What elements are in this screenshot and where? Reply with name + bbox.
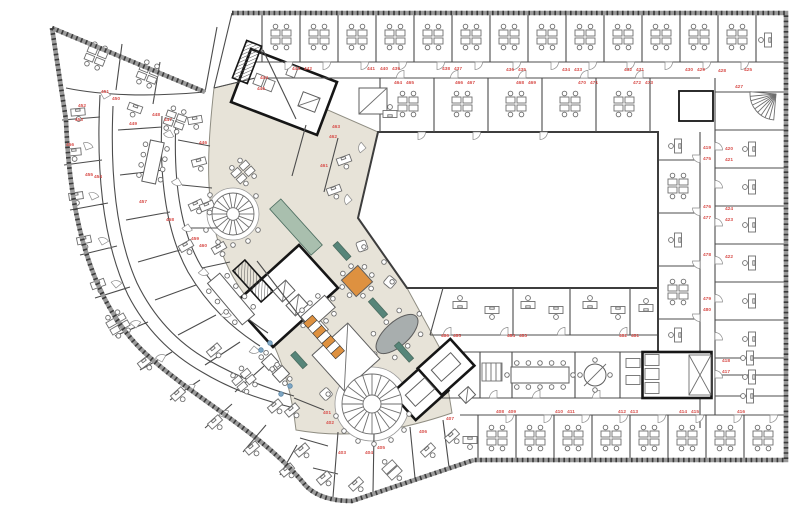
room-label: 428 <box>718 68 726 74</box>
chair <box>389 438 394 443</box>
room-label: 449 <box>129 121 137 127</box>
room-label: 427 <box>735 84 743 90</box>
room-label: 446 <box>199 140 207 146</box>
room-label: 456 <box>66 142 74 148</box>
room-label: 442 <box>304 66 312 72</box>
chair <box>259 348 264 353</box>
room-label: 411 <box>567 409 575 415</box>
chair <box>382 260 387 265</box>
room-label: 452 <box>78 103 86 109</box>
chair <box>143 142 148 147</box>
room-label: 470 <box>578 80 586 86</box>
room-label: 438 <box>442 66 450 72</box>
chair <box>593 388 598 393</box>
chair <box>549 361 554 366</box>
room-label: 431 <box>636 67 644 73</box>
chair <box>254 194 259 199</box>
room-label: 441 <box>367 66 375 72</box>
floor-plan-canvas: 4434424414404394384374364354344334324314… <box>0 0 800 507</box>
chair <box>526 361 531 366</box>
fixture <box>679 91 713 121</box>
fixture <box>645 369 659 380</box>
room-label: 465 <box>406 80 414 86</box>
room-label: 447 <box>164 117 172 123</box>
chair <box>402 428 407 433</box>
room-label: 444 <box>260 75 268 81</box>
room-label: 424 <box>725 206 733 212</box>
room-label: 482 <box>619 333 627 339</box>
room-label: 463 <box>332 124 340 130</box>
room-label: 473 <box>645 80 653 86</box>
room-label: 485 <box>453 333 461 339</box>
room-label: 402 <box>326 420 334 426</box>
chair <box>334 414 339 419</box>
room-label: 462 <box>329 134 337 140</box>
chair <box>571 373 576 378</box>
chair <box>593 358 598 363</box>
chair <box>246 239 251 244</box>
chair <box>268 341 273 346</box>
room-label: 468 <box>516 80 524 86</box>
room-label: 480 <box>703 307 711 313</box>
room-label: 430 <box>685 67 693 73</box>
chair <box>407 412 412 417</box>
room-label: 453 <box>75 117 83 123</box>
room-label: 407 <box>446 416 454 422</box>
room-label: 423 <box>725 217 733 223</box>
room-label: 469 <box>528 80 536 86</box>
room-label: 451 <box>101 89 109 95</box>
room-label: 425 <box>744 67 752 73</box>
fixture <box>626 359 640 368</box>
room-label: 443 <box>292 66 300 72</box>
room-label: 464 <box>394 80 402 86</box>
room-label: 405 <box>377 445 385 451</box>
fixture <box>626 376 640 385</box>
room-label: 416 <box>737 409 745 415</box>
fixture <box>645 355 659 366</box>
room-label: 439 <box>392 66 400 72</box>
room-label: 486 <box>441 333 449 339</box>
table-top <box>511 367 569 383</box>
room-label: 412 <box>618 409 626 415</box>
chair <box>216 240 221 245</box>
room-label: 461 <box>320 163 328 169</box>
room-label: 450 <box>112 96 120 102</box>
chair <box>578 373 583 378</box>
room-label: 466 <box>455 80 463 86</box>
chair <box>515 385 520 390</box>
room-label: 414 <box>679 409 687 415</box>
stair-core <box>363 395 381 413</box>
room-label: 478 <box>703 252 711 258</box>
room-label: 440 <box>380 66 388 72</box>
room-label: 481 <box>631 333 639 339</box>
room-label: 415 <box>691 409 699 415</box>
room-label: 477 <box>703 215 711 221</box>
room-label: 467 <box>467 80 475 86</box>
room-label: 420 <box>725 146 733 152</box>
room-label: 471 <box>590 80 598 86</box>
room-label: 472 <box>633 80 641 86</box>
chair <box>356 439 361 444</box>
room-label: 475 <box>703 156 711 162</box>
chair <box>561 385 566 390</box>
chair <box>538 361 543 366</box>
room-label: 404 <box>365 450 373 456</box>
chair <box>256 228 261 233</box>
chair <box>162 156 167 161</box>
chair <box>505 373 510 378</box>
room-label: 419 <box>703 145 711 151</box>
room-label: 421 <box>725 157 733 163</box>
chair <box>279 392 284 397</box>
room-label: 483 <box>519 333 527 339</box>
chair <box>231 243 236 248</box>
room-label: 401 <box>323 410 331 416</box>
chair <box>515 361 520 366</box>
room-label: 448 <box>152 112 160 118</box>
room-label: 455 <box>85 172 93 178</box>
chair <box>164 146 169 151</box>
chair <box>561 361 566 366</box>
chair <box>372 442 377 447</box>
desk <box>207 415 226 434</box>
spiral-stair <box>342 374 402 434</box>
chair <box>288 384 293 389</box>
room-label: 406 <box>419 429 427 435</box>
room-label: 409 <box>508 409 516 415</box>
room-label: 458 <box>166 217 174 223</box>
stair-core <box>227 208 240 221</box>
room-label: 479 <box>703 296 711 302</box>
room-label: 413 <box>630 409 638 415</box>
floor-plan-page: 4434424414404394384374364354344334324314… <box>0 0 800 507</box>
room-label: 410 <box>555 409 563 415</box>
room-label: 445 <box>257 86 265 92</box>
room-label: 460 <box>199 243 207 249</box>
chair <box>342 429 347 434</box>
chair <box>158 177 163 182</box>
room-label: 433 <box>574 67 582 73</box>
room-label: 417 <box>722 369 730 375</box>
room-label: 432 <box>624 67 632 73</box>
spiral-stair <box>212 193 254 235</box>
table <box>505 361 576 390</box>
chair <box>538 385 543 390</box>
room-label: 403 <box>338 450 346 456</box>
chair <box>204 228 209 233</box>
chair <box>160 167 165 172</box>
room-label: 476 <box>703 204 711 210</box>
room-label: 408 <box>496 409 504 415</box>
room-label: 429 <box>697 67 705 73</box>
chair <box>208 193 213 198</box>
room-label: 459 <box>191 236 199 242</box>
fixture <box>482 363 502 381</box>
room-label: 422 <box>725 254 733 260</box>
chair <box>136 172 141 177</box>
room-label: 484 <box>507 333 515 339</box>
room-label: 454 <box>94 174 102 180</box>
room-label: 457 <box>139 199 147 205</box>
chair <box>549 385 554 390</box>
wall-path <box>358 132 658 288</box>
room-label: 437 <box>454 66 462 72</box>
chair <box>608 373 613 378</box>
chair <box>141 152 146 157</box>
chair <box>138 162 143 167</box>
room-label: 436 <box>506 67 514 73</box>
fixture <box>645 383 659 394</box>
room-label: 418 <box>722 358 730 364</box>
chair <box>526 385 531 390</box>
room-label: 434 <box>562 67 570 73</box>
room-label: 435 <box>518 67 526 73</box>
